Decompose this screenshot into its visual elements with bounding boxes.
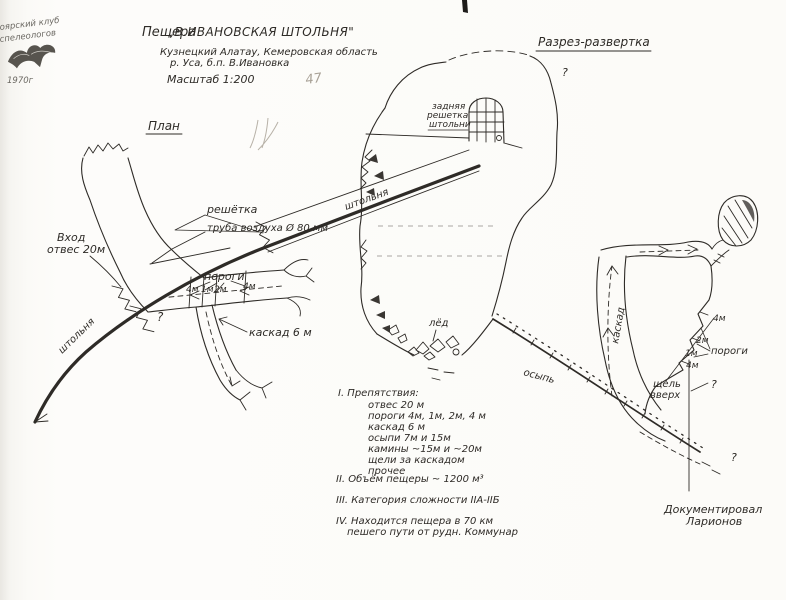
entrance-leader <box>90 256 121 287</box>
grate-label: решётка <box>206 203 258 216</box>
upper-passage-arrows <box>659 245 697 255</box>
location-note-line1: IV. Находится пещера в 70 км <box>336 516 494 527</box>
bat-icon <box>6 42 57 71</box>
upper-grate-chamber <box>718 196 757 246</box>
cascade-left-wall <box>597 257 665 441</box>
step-2m: 2м <box>696 336 709 346</box>
stamp-year: 1970г <box>7 76 34 86</box>
plan-question-mark: ? <box>157 310 164 324</box>
obstacle-item: щели за каскадом <box>368 455 465 466</box>
speleo-club-stamp: оярский клуб спелеологов 1970г <box>0 16 60 86</box>
upper-passage-survey <box>640 250 698 252</box>
scree-label: осыпь <box>522 367 556 386</box>
step-4m-top: 4м <box>713 314 726 324</box>
scree-end-strokes <box>702 462 720 474</box>
air-pipe-label: труба воздуха Ø 80 мм <box>207 222 328 234</box>
adit-label-lower: штольня <box>56 316 97 356</box>
rapids-arm-fork-tips <box>284 259 314 316</box>
left-wall-dark-rocks <box>366 154 390 333</box>
entrance-crystals <box>84 143 128 156</box>
page-title-name: „В.ИВАНОВСКАЯ ШТОЛЬНЯ" <box>168 25 354 39</box>
obstacle-item: осыпи 7м и 15м <box>368 433 451 444</box>
air-pipe-inner-line <box>268 171 479 252</box>
obstacle-item: каскад 6 м <box>368 422 425 433</box>
notes-block: I. Препятствия: отвес 20 м пороги 4м, 1м… <box>336 388 518 538</box>
settlement-line: р. Уса, б.п. В.Ивановка <box>169 57 289 69</box>
chamber-level-lines <box>377 226 502 256</box>
section-cascade-label: каскад <box>610 306 627 344</box>
tail-forks <box>236 370 272 410</box>
plan-heading: План <box>148 119 180 133</box>
upper-passage-bottom <box>627 256 711 266</box>
section-question-right: ? <box>711 378 717 391</box>
floor-rise-to-peak <box>462 319 493 355</box>
step-4m-low: 4м <box>686 361 699 371</box>
ice-label: лёд <box>428 318 449 329</box>
chimney-neck <box>711 240 729 266</box>
obstacle-item: пороги 4м, 1м, 2м, 4 м <box>368 411 486 422</box>
credit-block: Документировал Ларионов <box>663 503 762 528</box>
plan-view: План <box>35 119 479 422</box>
rapids-tick-4m-b: 4м <box>243 282 256 292</box>
pencil-scribble <box>250 118 278 150</box>
entrance-label-line2: отвес 20м <box>47 243 105 256</box>
rapids-tick-2m: 2м <box>214 285 227 295</box>
rapids-tick-4m-a: 4м <box>186 285 199 295</box>
step-1m: 1м <box>685 349 698 359</box>
tail-survey-arrow <box>230 377 240 386</box>
ink-smudge <box>462 0 468 13</box>
ice-leader <box>433 330 436 341</box>
section-rapids-label: пороги <box>711 346 748 357</box>
location-note-line2: пешего пути от рудн. Коммунар <box>347 527 518 538</box>
rapids-arm-bottom <box>148 298 287 312</box>
rapids-tick-1m: 1м <box>201 285 214 295</box>
volume-note: II. Объём пещеры ~ 1200 м³ <box>336 473 484 485</box>
plan-cascade-leader <box>219 317 247 332</box>
obstacle-item: отвес 20 м <box>368 400 425 411</box>
plan-cave-right-wall <box>128 158 204 278</box>
section-question-top: ? <box>562 66 568 79</box>
plan-cave-left-wall <box>82 158 148 312</box>
grate-symbol-mid <box>109 282 139 316</box>
pencil-note: 47 <box>304 71 323 88</box>
chamber-right-wall <box>492 56 558 316</box>
rapids-label: пороги <box>204 270 245 283</box>
chamber-dome-dashed <box>449 51 528 60</box>
back-grate-label-line3: штольни <box>429 120 471 130</box>
scanned-cave-survey-sheet: оярский клуб спелеологов 1970г Пещера „В… <box>0 0 786 600</box>
ice-rocks <box>408 336 459 380</box>
section-question-bottom: ? <box>731 451 737 464</box>
slit-label-line2: вверх <box>650 390 680 401</box>
plan-cascade-label: каскад 6 м <box>249 326 312 339</box>
region-line: Кузнецкий Алатау, Кемеровская область <box>160 46 378 58</box>
slit-label-line1: щель <box>653 379 681 390</box>
survey-drawing: оярский клуб спелеологов 1970г Пещера „В… <box>0 0 786 600</box>
section-heading: Разрез-развертка <box>538 35 650 49</box>
difficulty-note: III. Категория сложности IIА-IIБ <box>336 495 500 506</box>
question-right-leader <box>691 383 708 391</box>
obstacle-item: камины ~15м и ~20м <box>368 444 482 455</box>
tail-passage <box>196 305 240 400</box>
obstacles-heading: I. Препятствия: <box>338 388 419 399</box>
scale-label: Масштаб 1:200 <box>167 73 254 86</box>
credit-line2: Ларионов <box>685 515 742 528</box>
scree-dashed-continuation <box>640 432 700 464</box>
